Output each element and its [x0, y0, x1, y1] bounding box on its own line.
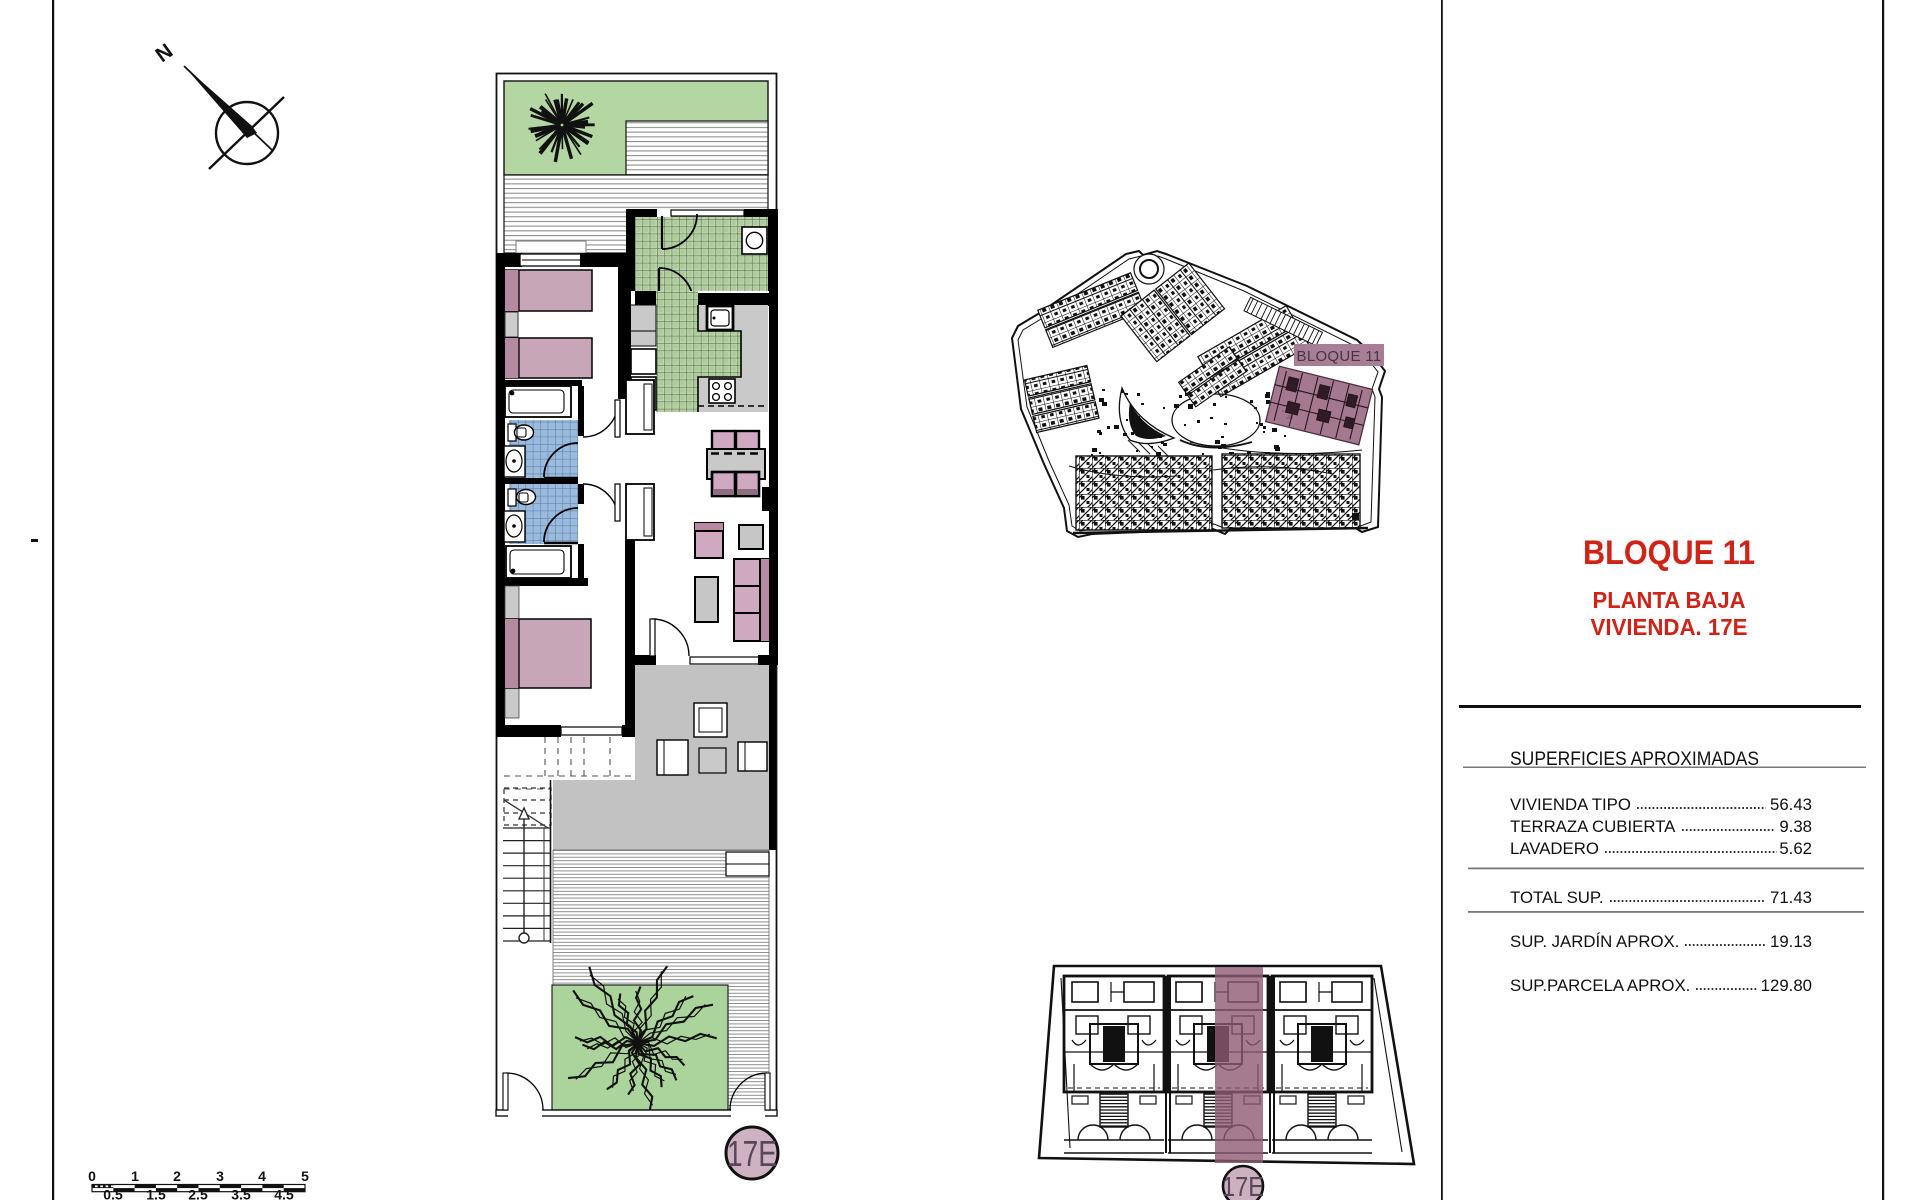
svg-text:2: 2 [173, 1168, 181, 1184]
svg-text:71.43: 71.43 [1770, 888, 1812, 907]
svg-text:SUP.PARCELA APROX.: SUP.PARCELA APROX. [1510, 976, 1690, 995]
svg-text:1: 1 [131, 1168, 139, 1184]
svg-text:0: 0 [88, 1168, 96, 1184]
svg-text:19.13: 19.13 [1770, 932, 1812, 951]
svg-text:SUP. JARDÍN APROX.: SUP. JARDÍN APROX. [1510, 932, 1679, 951]
svg-text:5: 5 [301, 1168, 309, 1184]
svg-text:2.5: 2.5 [188, 1187, 208, 1200]
svg-text:4: 4 [258, 1168, 266, 1184]
svg-text:3: 3 [216, 1168, 224, 1184]
svg-text:1.5: 1.5 [146, 1187, 166, 1200]
svg-text:TERRAZA CUBIERTA: TERRAZA CUBIERTA [1510, 817, 1676, 836]
svg-text:LAVADERO: LAVADERO [1510, 839, 1599, 858]
svg-text:0.5: 0.5 [103, 1187, 123, 1200]
svg-text:56.43: 56.43 [1770, 795, 1812, 814]
svg-text:129.80: 129.80 [1761, 976, 1812, 995]
svg-text:BLOQUE 11: BLOQUE 11 [1297, 348, 1382, 365]
svg-text:3.5: 3.5 [231, 1187, 251, 1200]
svg-text:VIVIENDA. 17E: VIVIENDA. 17E [1591, 614, 1748, 640]
svg-text:BLOQUE 11: BLOQUE 11 [1583, 534, 1755, 572]
svg-text:TOTAL SUP.: TOTAL SUP. [1510, 888, 1604, 907]
svg-text:VIVIENDA TIPO: VIVIENDA TIPO [1510, 795, 1631, 814]
svg-text:5.62: 5.62 [1779, 839, 1812, 858]
svg-text:PLANTA BAJA: PLANTA BAJA [1593, 587, 1746, 613]
svg-text:4.5: 4.5 [274, 1187, 294, 1200]
svg-text:9.38: 9.38 [1779, 817, 1812, 836]
svg-text:17E: 17E [1222, 1171, 1264, 1200]
svg-text:17E: 17E [727, 1133, 777, 1174]
